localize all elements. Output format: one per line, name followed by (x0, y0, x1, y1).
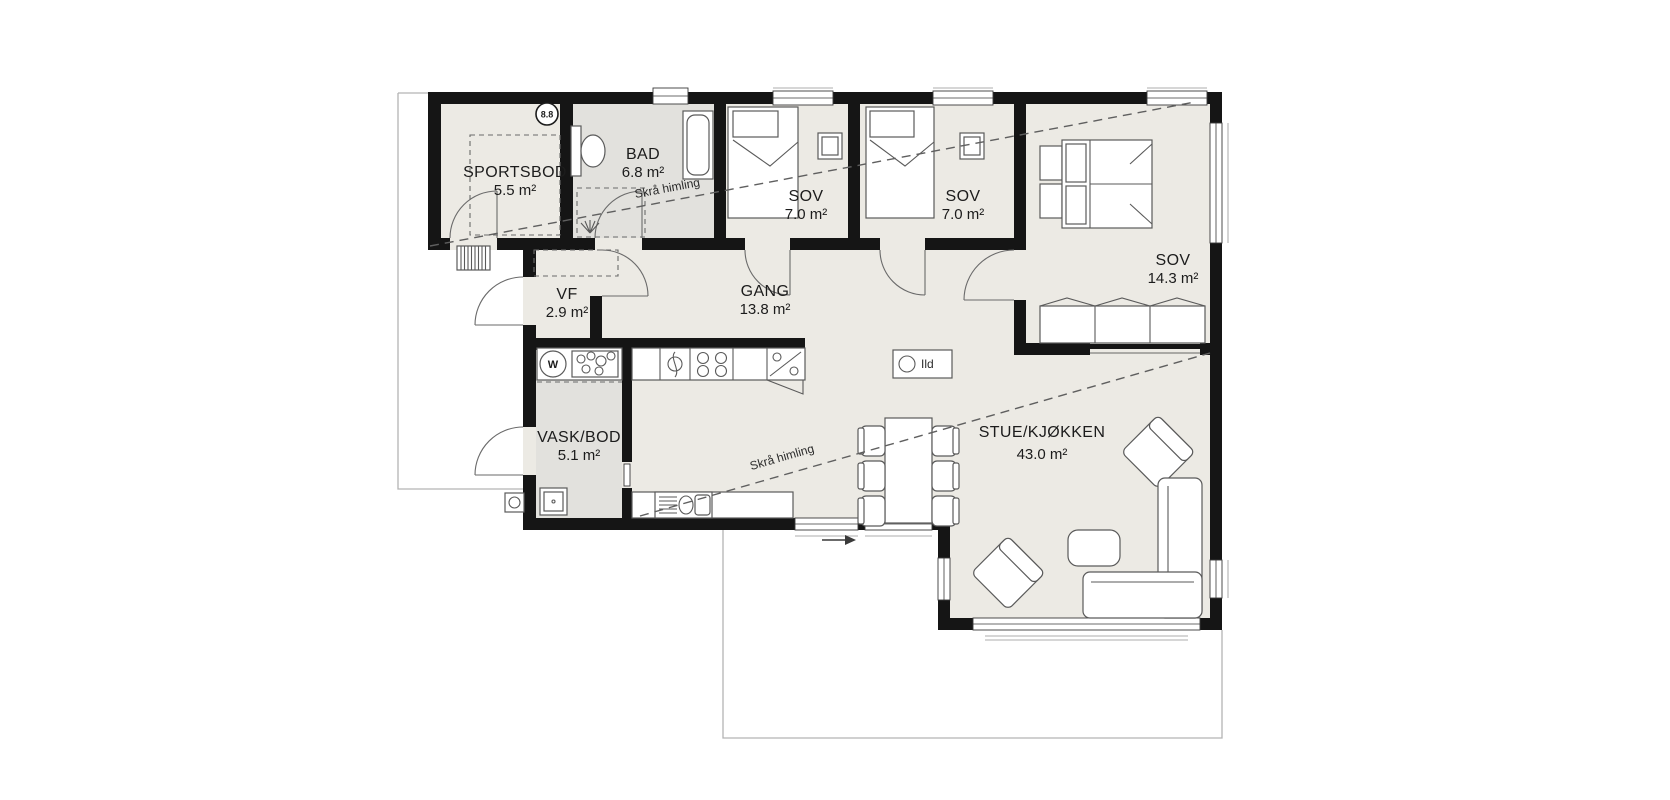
area-label-sov2: 7.0 m² (942, 206, 985, 223)
area-label-gang: 13.8 m² (740, 301, 791, 318)
room-label-sportsbod: SPORTSBOD (463, 164, 567, 181)
dimension-badge: 8.8 (541, 110, 554, 120)
room-label-vf: VF (556, 286, 577, 303)
floor-plan-drawing: W Ild (0, 0, 1670, 800)
laundry-sliding-door (624, 464, 630, 486)
coffee-table (1068, 530, 1120, 566)
room-label-sov3: SOV (1156, 252, 1191, 269)
area-label-sov1: 7.0 m² (785, 206, 828, 223)
room-label-sov2: SOV (946, 188, 981, 205)
floor-plan-page: W Ild (0, 0, 1670, 800)
room-label-sov1: SOV (789, 188, 824, 205)
room-label-bad: BAD (626, 146, 660, 163)
washer-label: W (548, 359, 559, 371)
area-label-sov3: 14.3 m² (1148, 270, 1199, 287)
room-label-gang: GANG (741, 283, 790, 300)
laundry-entrance-door (475, 427, 523, 475)
main-entrance-door (475, 277, 523, 325)
room-label-stue-kjokken: STUE/KJØKKEN (979, 424, 1106, 441)
room-label-vask-bod: VASK/BOD (537, 429, 621, 446)
area-label-stue-kjokken: 43.0 m² (1017, 446, 1068, 463)
fireplace: Ild (893, 350, 952, 378)
fireplace-label: Ild (921, 357, 934, 371)
dining-set (858, 418, 959, 526)
master-bedroom-glass-band (1090, 344, 1200, 349)
area-label-vask-bod: 5.1 m² (558, 447, 601, 464)
area-label-bad: 6.8 m² (622, 164, 665, 181)
area-label-sportsbod: 5.5 m² (494, 182, 537, 199)
area-label-vf: 2.9 m² (546, 304, 589, 321)
